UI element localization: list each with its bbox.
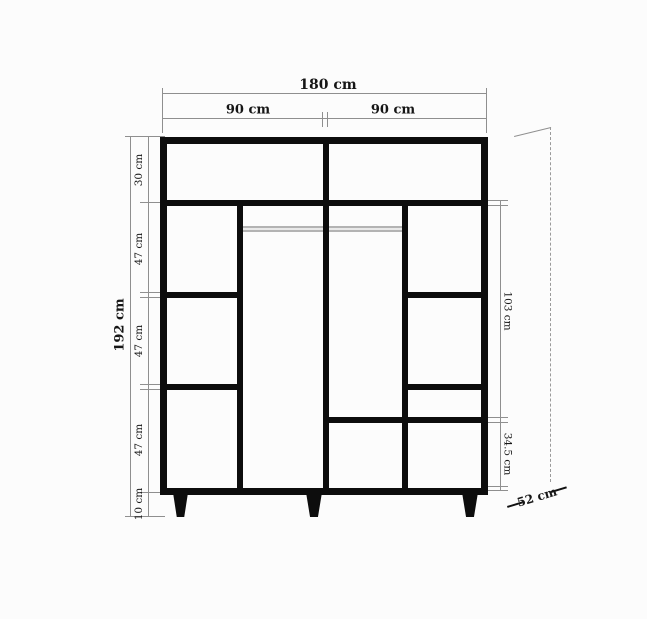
dimension-tick xyxy=(125,516,165,517)
depth-projection-top-edge xyxy=(514,127,551,137)
center-divider xyxy=(323,140,329,492)
dimension-tick xyxy=(486,422,508,423)
leg-center xyxy=(305,495,323,517)
center-tick-right xyxy=(327,112,328,127)
lower-shelf-height-label: 47 cm xyxy=(134,424,145,457)
hanging-space-height-label: 103 cm xyxy=(502,291,513,330)
dimension-tick xyxy=(486,490,508,491)
dimension-tick xyxy=(125,136,165,137)
lower-right-shelf xyxy=(326,417,484,423)
right-column-shelf-upper xyxy=(406,292,484,298)
dimension-line-total-height xyxy=(130,136,131,517)
left-column-shelf-upper xyxy=(164,292,240,298)
extension-line-left xyxy=(162,88,163,133)
left-column-divider xyxy=(237,203,243,492)
depth-label: 52 cm xyxy=(516,485,559,508)
dimension-tick xyxy=(486,200,508,201)
right-column-divider xyxy=(402,203,408,492)
upper-shelf-height-label: 47 cm xyxy=(134,233,145,266)
bottom-right-height-label: 34.5 cm xyxy=(502,433,513,476)
dimension-tick xyxy=(486,417,508,418)
right-column-shelf-lower xyxy=(406,384,484,390)
dimension-chain-line-left xyxy=(148,136,149,517)
leg-right xyxy=(461,495,479,517)
top-section-height-label: 30 cm xyxy=(134,154,145,187)
dimension-tick xyxy=(486,205,508,206)
dimension-line-total-width xyxy=(162,93,487,94)
leg-height-label: 10 cm xyxy=(134,488,145,521)
extension-line-right xyxy=(486,88,487,133)
total-height-label: 192 cm xyxy=(114,298,127,351)
dimension-tick xyxy=(486,486,508,487)
right-half-width-label: 90 cm xyxy=(371,104,415,117)
total-width-label: 180 cm xyxy=(299,78,356,92)
hanging-rail-left xyxy=(243,226,323,232)
center-tick-left xyxy=(322,112,323,127)
middle-shelf-height-label: 47 cm xyxy=(134,325,145,358)
leg-left xyxy=(172,495,189,517)
left-half-width-label: 90 cm xyxy=(226,104,270,117)
dimension-line-half-widths xyxy=(162,118,487,119)
depth-dashed-line xyxy=(550,127,551,482)
wardrobe-diagram: 180 cm 90 cm 90 cm 192 cm 30 cm 47 cm 47… xyxy=(0,0,647,619)
hanging-rail-right xyxy=(329,226,402,232)
left-column-shelf-lower xyxy=(164,384,240,390)
